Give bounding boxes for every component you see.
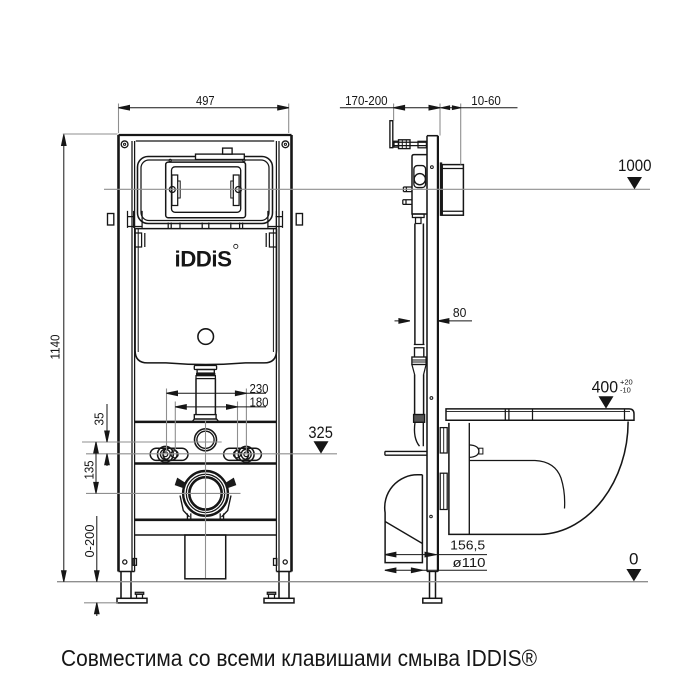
- svg-text:0: 0: [629, 549, 638, 568]
- svg-text:Совместима со всеми клавишами: Совместима со всеми клавишами смыва IDDI…: [61, 645, 537, 671]
- svg-text:-10: -10: [620, 386, 631, 395]
- svg-text:80: 80: [453, 305, 467, 320]
- svg-text:400: 400: [592, 378, 619, 397]
- svg-text:1140: 1140: [48, 335, 63, 360]
- svg-text:35: 35: [92, 413, 107, 426]
- svg-text:0-200: 0-200: [82, 525, 97, 558]
- svg-text:ø110: ø110: [453, 555, 486, 570]
- svg-text:325: 325: [308, 423, 333, 442]
- svg-text:10-60: 10-60: [471, 93, 501, 108]
- svg-text:170-200: 170-200: [345, 93, 388, 108]
- svg-text:497: 497: [196, 93, 215, 108]
- svg-text:135: 135: [82, 461, 97, 480]
- svg-text:180: 180: [250, 394, 269, 409]
- svg-text:156,5: 156,5: [450, 538, 485, 553]
- svg-text:iDDiS: iDDiS: [175, 246, 232, 271]
- svg-text:1000: 1000: [618, 156, 652, 175]
